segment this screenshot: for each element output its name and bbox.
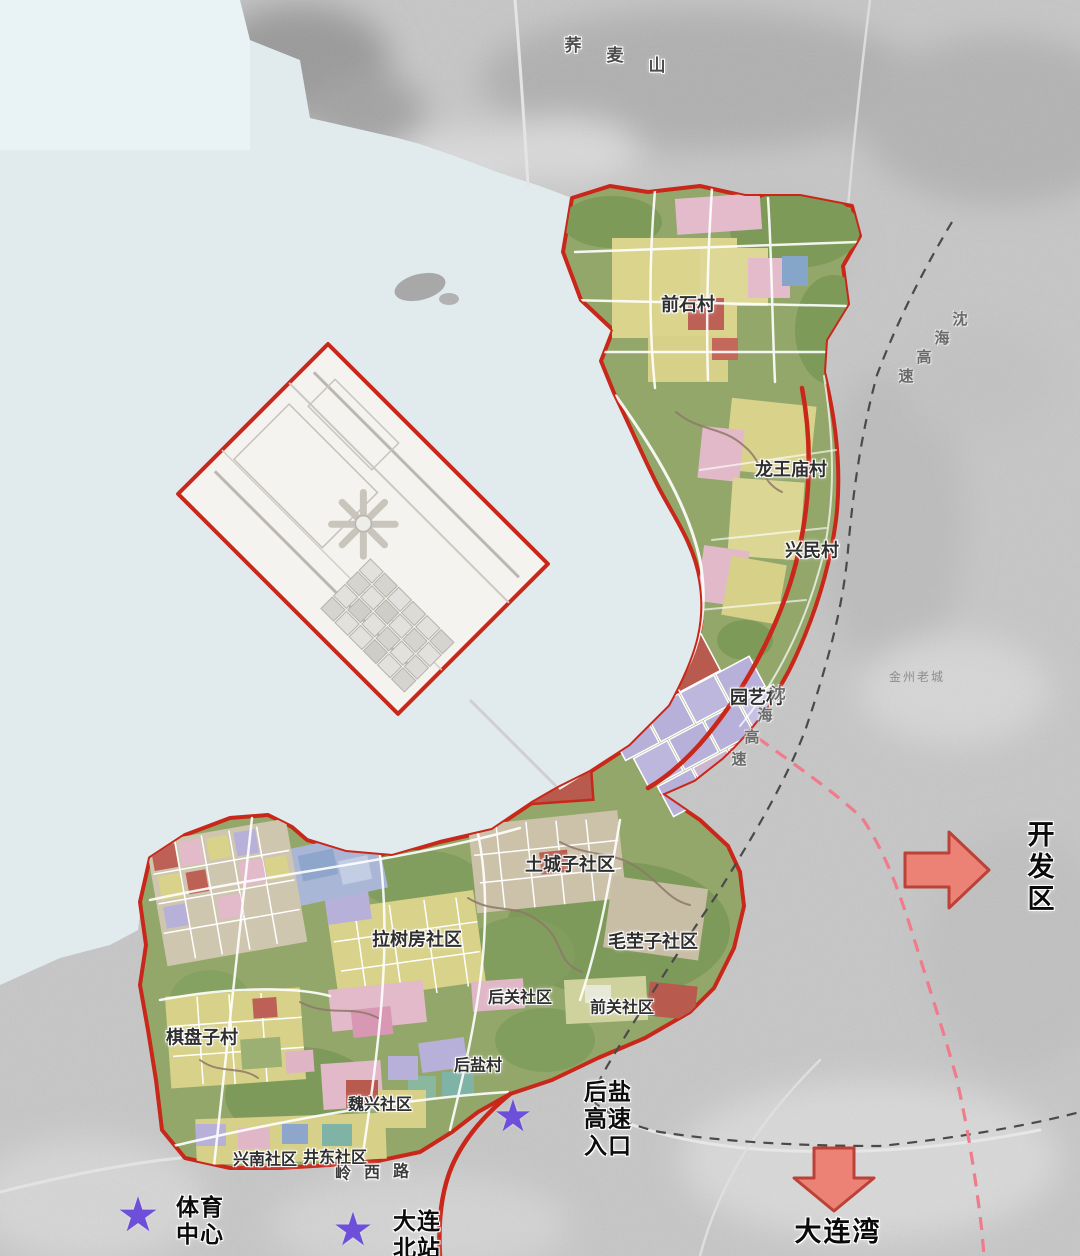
label-jinzhou-old-town: 金州老城 [889, 670, 945, 684]
label-weixing-community: 魏兴社区 [348, 1096, 412, 1115]
label-xingnan-community: 兴南社区 [233, 1151, 297, 1170]
label-tuchengzi-community: 土城子社区 [525, 854, 615, 875]
label-qianguan-community: 前关社区 [590, 999, 654, 1018]
label-maoyingzi-community: 毛茔子社区 [608, 931, 698, 952]
label-longwangmiao-village: 龙王庙村 [755, 459, 827, 480]
label-houguan-community: 后关社区 [488, 989, 552, 1008]
dalian-north-station-star: ★ [332, 1206, 373, 1252]
label-houyan-expressway-entrance: 后盐 高速 入口 [584, 1079, 632, 1160]
houyan-entrance-star: ★ [493, 1095, 532, 1139]
planning-map: 荞麦山前石村龙王庙村兴民村园艺村沈海高速沈海高速金州老城土城子社区毛茔子社区拉树… [0, 0, 1080, 1256]
label-dalian-north-station: 大连 北站 [393, 1209, 441, 1256]
label-qianshi-village: 前石村 [661, 294, 715, 315]
label-houyan-village: 后盐村 [454, 1057, 502, 1076]
sports-center-star: ★ [116, 1191, 159, 1239]
label-dalian-bay: 大连湾 [795, 1217, 882, 1249]
label-lashufang-community: 拉树房社区 [372, 929, 462, 950]
label-xingmin-village: 兴民村 [785, 540, 839, 561]
label-development-zone: 开发区 [1023, 820, 1061, 916]
label-sports-center: 体育 中心 [176, 1195, 224, 1249]
label-qipanzi-village: 棋盘子村 [166, 1027, 238, 1048]
map-overlay: 荞麦山前石村龙王庙村兴民村园艺村沈海高速沈海高速金州老城土城子社区毛茔子社区拉树… [0, 0, 1080, 1256]
